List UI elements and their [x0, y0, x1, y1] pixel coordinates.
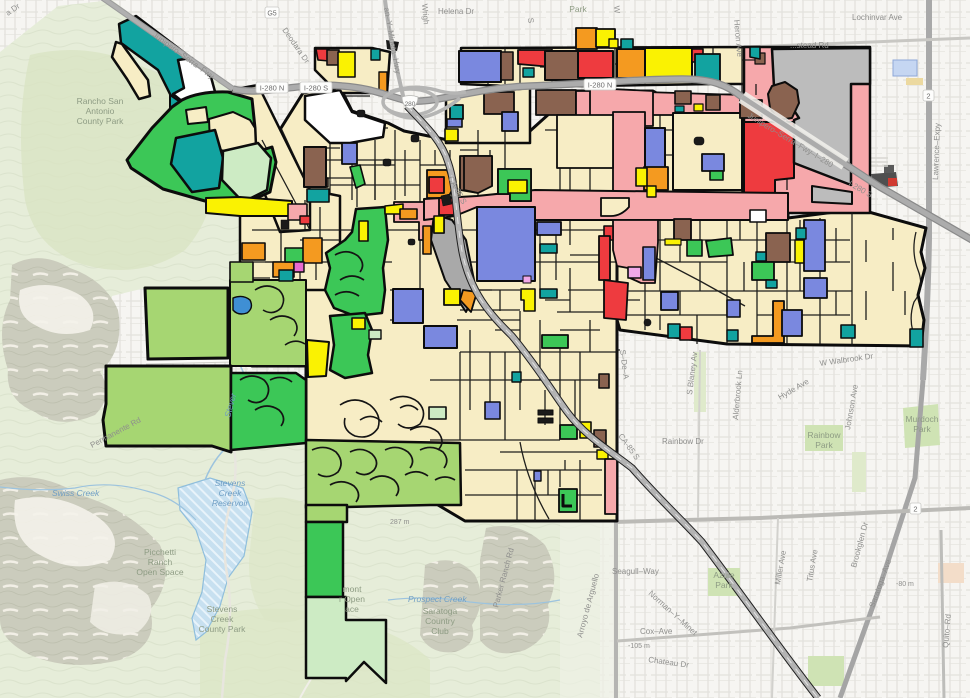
svg-text:AzulePark: AzulePark	[713, 570, 735, 590]
svg-text:-80 m: -80 m	[896, 581, 914, 588]
svg-text:2: 2	[926, 92, 930, 101]
svg-text:I-280 N: I-280 N	[260, 84, 285, 93]
svg-text:Cox–Ave: Cox–Ave	[640, 627, 673, 636]
svg-text:-105 m: -105 m	[628, 643, 650, 650]
svg-text:I-280 N: I-280 N	[588, 81, 613, 90]
svg-text:280: 280	[405, 101, 416, 108]
svg-text:Lochinvar Ave: Lochinvar Ave	[852, 13, 903, 22]
svg-text:287 m: 287 m	[390, 519, 410, 526]
svg-text:...stead Rd: ...stead Rd	[790, 41, 829, 50]
svg-text:Seagull–Way: Seagull–Way	[612, 567, 659, 576]
svg-text:2: 2	[913, 505, 917, 514]
svg-text:Helena Dr: Helena Dr	[438, 7, 474, 16]
svg-text:G5: G5	[267, 11, 276, 18]
svg-text:Prospect Creek: Prospect Creek	[408, 594, 467, 604]
svg-text:W: W	[612, 5, 622, 14]
svg-text:Wrigh: Wrigh	[420, 3, 431, 24]
svg-text:Park: Park	[569, 4, 587, 14]
svg-text:S: S	[526, 17, 535, 23]
svg-text:Rainbow Dr: Rainbow Dr	[662, 437, 704, 446]
svg-text:Swiss Creek: Swiss Creek	[52, 488, 100, 498]
svg-text:I-280 S: I-280 S	[304, 84, 328, 93]
